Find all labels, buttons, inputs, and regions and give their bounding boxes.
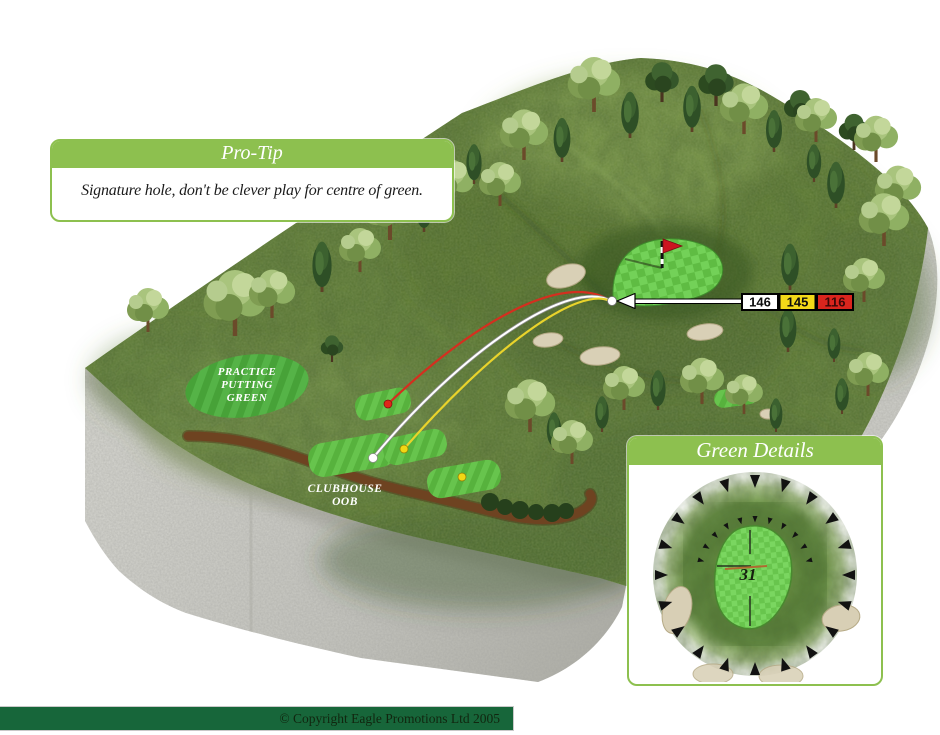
green-depth-value: 31 [739,565,757,584]
protip-panel: Pro-Tip Signature hole, don't be clever … [50,139,454,222]
copyright-text: © Copyright Eagle Promotions Ltd 2005 [279,711,500,727]
svg-text:OOB: OOB [332,496,358,508]
landing-point-marker [608,297,617,306]
copyright-bar: © Copyright Eagle Promotions Ltd 2005 [0,706,514,731]
distance-boxes: 146 145 116 [742,294,853,310]
white-tee-marker [369,454,378,463]
green-details-title: Green Details [629,438,881,468]
yellow-tee-marker [458,473,466,481]
protip-text: Signature hole, don't be clever play for… [52,171,452,220]
svg-text:CLUBHOUSE: CLUBHOUSE [308,483,383,495]
protip-title: Pro-Tip [52,141,452,171]
putting-green [577,224,753,320]
distance-value-red: 116 [825,295,846,310]
red-tee-marker [384,400,392,408]
golf-hole-guide: PRACTICE PUTTING GREEN [0,0,940,735]
distance-value-white: 146 [749,295,771,310]
svg-text:GREEN: GREEN [227,392,268,404]
yellow-tee-marker [400,445,408,453]
svg-text:PRACTICE: PRACTICE [218,366,276,378]
green-detail-map: 31 [629,468,877,682]
green-details-panel: Green Details 31 [627,436,883,686]
distance-value-yellow: 145 [787,295,809,310]
svg-text:PUTTING: PUTTING [221,379,273,391]
